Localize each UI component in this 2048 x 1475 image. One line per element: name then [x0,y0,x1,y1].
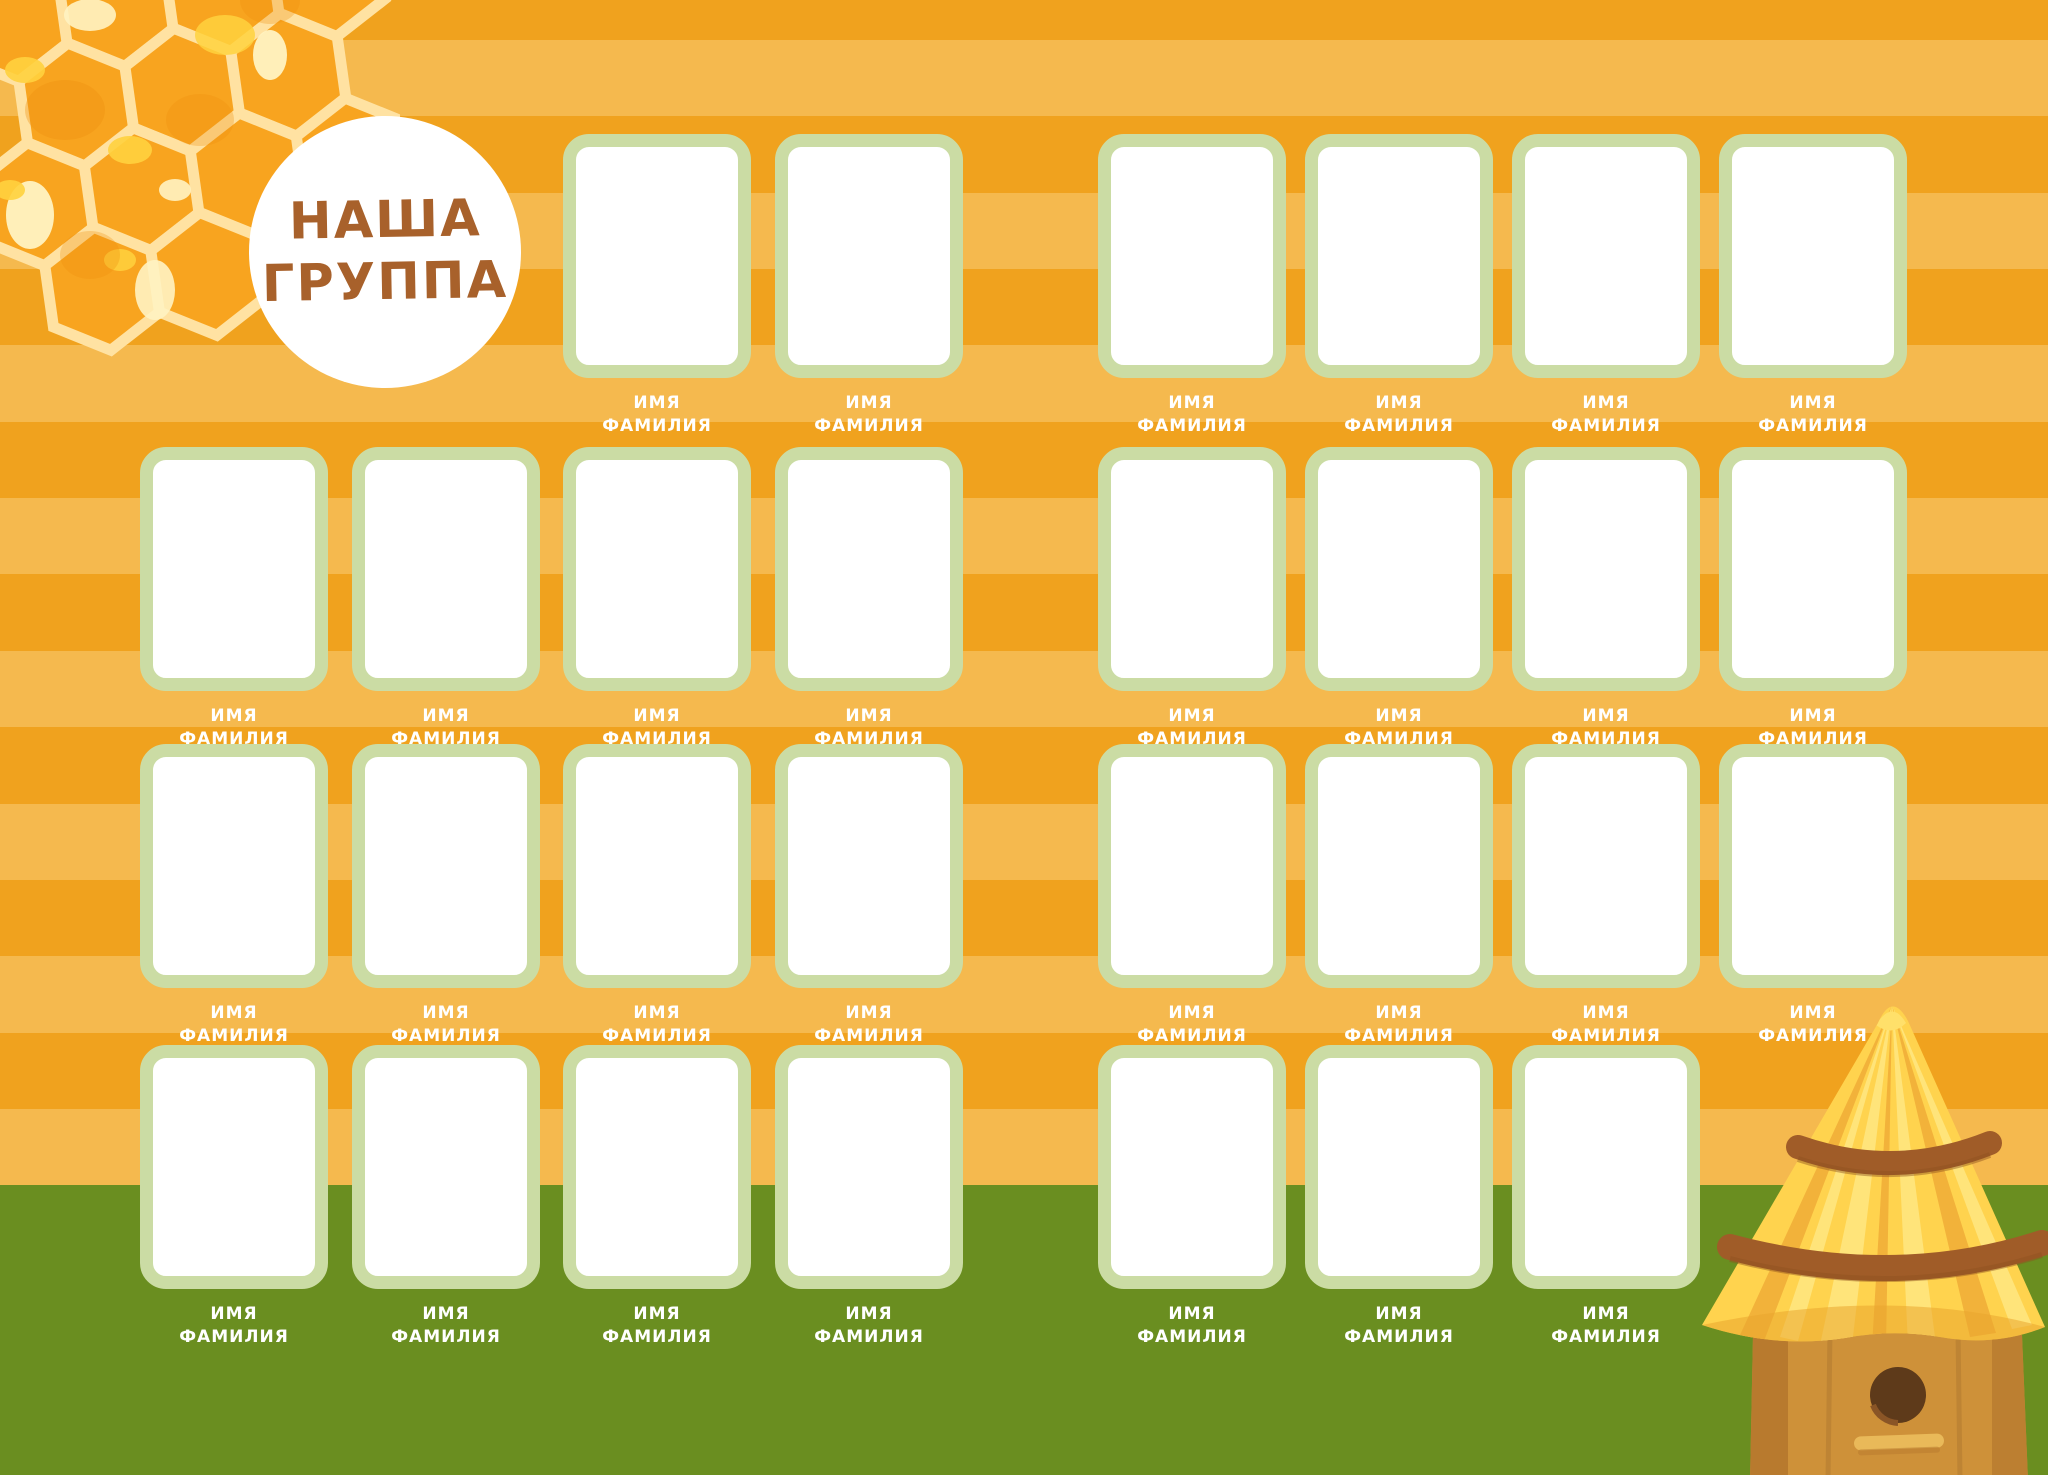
slot-first-name: ИМЯ [114,1303,354,1326]
photo-frame[interactable] [352,744,540,988]
photo-frame[interactable] [1098,134,1286,378]
honeycomb-highlight [135,260,175,320]
slot-name-label: ИМЯФАМИЛИЯ [1279,1002,1519,1048]
slot-first-name: ИМЯ [1072,705,1312,728]
slot-name-label: ИМЯФАМИЛИЯ [749,392,989,438]
slot-last-name: ФАМИЛИЯ [1072,1326,1312,1349]
honeycomb-highlight [25,80,105,140]
slot-last-name: ФАМИЛИЯ [1072,415,1312,438]
photo-frame[interactable] [775,447,963,691]
slot-first-name: ИМЯ [1279,392,1519,415]
slot-last-name: ФАМИЛИЯ [537,415,777,438]
slot-name-label: ИМЯФАМИЛИЯ [1279,1303,1519,1349]
slot-name-label: ИМЯФАМИЛИЯ [749,1303,989,1349]
slot-first-name: ИМЯ [326,1002,566,1025]
slot-first-name: ИМЯ [1279,1303,1519,1326]
slot-first-name: ИМЯ [1279,705,1519,728]
photo-frame[interactable] [140,447,328,691]
slot-first-name: ИМЯ [1693,705,1933,728]
slot-last-name: ФАМИЛИЯ [1279,1326,1519,1349]
slot-last-name: ФАМИЛИЯ [537,1326,777,1349]
slot-first-name: ИМЯ [1693,392,1933,415]
slot-last-name: ФАМИЛИЯ [1486,415,1726,438]
slot-first-name: ИМЯ [537,1002,777,1025]
group-photo-poster: НАША ГРУППА ИМЯФАМИЛИЯИМЯФАМИЛИЯИМЯФАМИЛ… [0,0,2048,1475]
honeycomb-highlight [108,136,152,164]
slot-first-name: ИМЯ [749,705,989,728]
slot-first-name: ИМЯ [749,1303,989,1326]
photo-frame[interactable] [775,134,963,378]
slot-last-name: ФАМИЛИЯ [749,1326,989,1349]
honeycomb-highlight [253,30,287,80]
photo-frame[interactable] [1719,447,1907,691]
slot-name-label: ИМЯФАМИЛИЯ [114,1303,354,1349]
slot-last-name: ФАМИЛИЯ [114,1326,354,1349]
photo-frame[interactable] [775,744,963,988]
photo-frame[interactable] [1098,447,1286,691]
slot-first-name: ИМЯ [537,1303,777,1326]
slot-first-name: ИМЯ [326,1303,566,1326]
slot-last-name: ФАМИЛИЯ [749,415,989,438]
slot-first-name: ИМЯ [326,705,566,728]
slot-last-name: ФАМИЛИЯ [326,1326,566,1349]
slot-name-label: ИМЯФАМИЛИЯ [1072,392,1312,438]
photo-frame[interactable] [1305,447,1493,691]
photo-frame[interactable] [563,1045,751,1289]
photo-frame[interactable] [1098,1045,1286,1289]
slot-first-name: ИМЯ [114,705,354,728]
slot-name-label: ИМЯФАМИЛИЯ [537,1002,777,1048]
slot-first-name: ИМЯ [114,1002,354,1025]
slot-name-label: ИМЯФАМИЛИЯ [1072,1303,1312,1349]
hive-body [1750,1323,2028,1475]
slot-name-label: ИМЯФАМИЛИЯ [326,1002,566,1048]
slot-first-name: ИМЯ [1072,392,1312,415]
slot-first-name: ИМЯ [1072,1002,1312,1025]
slot-first-name: ИМЯ [537,392,777,415]
slot-last-name: ФАМИЛИЯ [1279,415,1519,438]
photo-frame[interactable] [352,1045,540,1289]
honeycomb-highlight [60,231,120,279]
title-line-1: НАША [288,191,482,250]
slot-name-label: ИМЯФАМИЛИЯ [749,1002,989,1048]
slot-first-name: ИМЯ [537,705,777,728]
slot-name-label: ИМЯФАМИЛИЯ [1072,1002,1312,1048]
photo-frame[interactable] [1512,744,1700,988]
slot-name-label: ИМЯФАМИЛИЯ [114,1002,354,1048]
photo-frame[interactable] [1512,447,1700,691]
photo-frame[interactable] [1719,744,1907,988]
slot-name-label: ИМЯФАМИЛИЯ [326,1303,566,1349]
photo-frame[interactable] [563,134,751,378]
slot-first-name: ИМЯ [1486,705,1726,728]
photo-frame[interactable] [775,1045,963,1289]
slot-first-name: ИМЯ [749,392,989,415]
slot-last-name: ФАМИЛИЯ [1693,415,1933,438]
honeycomb-highlight [64,0,116,31]
slot-name-label: ИМЯФАМИЛИЯ [1279,392,1519,438]
slot-name-label: ИМЯФАМИЛИЯ [537,1303,777,1349]
photo-frame[interactable] [563,447,751,691]
photo-frame[interactable] [563,744,751,988]
slot-name-label: ИМЯФАМИЛИЯ [537,392,777,438]
photo-frame[interactable] [1512,134,1700,378]
photo-frame[interactable] [140,1045,328,1289]
photo-frame[interactable] [1098,744,1286,988]
honeycomb-highlight [5,57,45,83]
photo-frame[interactable] [1305,744,1493,988]
photo-frame[interactable] [1719,134,1907,378]
slot-first-name: ИМЯ [749,1002,989,1025]
photo-frame[interactable] [352,447,540,691]
beehive-illustration [1640,985,2048,1475]
honeycomb-highlight [195,15,255,55]
slot-first-name: ИМЯ [1072,1303,1312,1326]
photo-frame[interactable] [140,744,328,988]
photo-frame[interactable] [1305,134,1493,378]
photo-frame[interactable] [1305,1045,1493,1289]
honeycomb-highlight [159,179,191,201]
title-line-2: ГРУППА [261,253,508,313]
slot-name-label: ИМЯФАМИЛИЯ [1693,392,1933,438]
slot-first-name: ИМЯ [1279,1002,1519,1025]
slot-name-label: ИМЯФАМИЛИЯ [1486,392,1726,438]
honeycomb-highlight [166,94,234,146]
hive-roof [1702,1005,2045,1355]
slot-first-name: ИМЯ [1486,392,1726,415]
title-circle: НАША ГРУППА [249,116,521,388]
